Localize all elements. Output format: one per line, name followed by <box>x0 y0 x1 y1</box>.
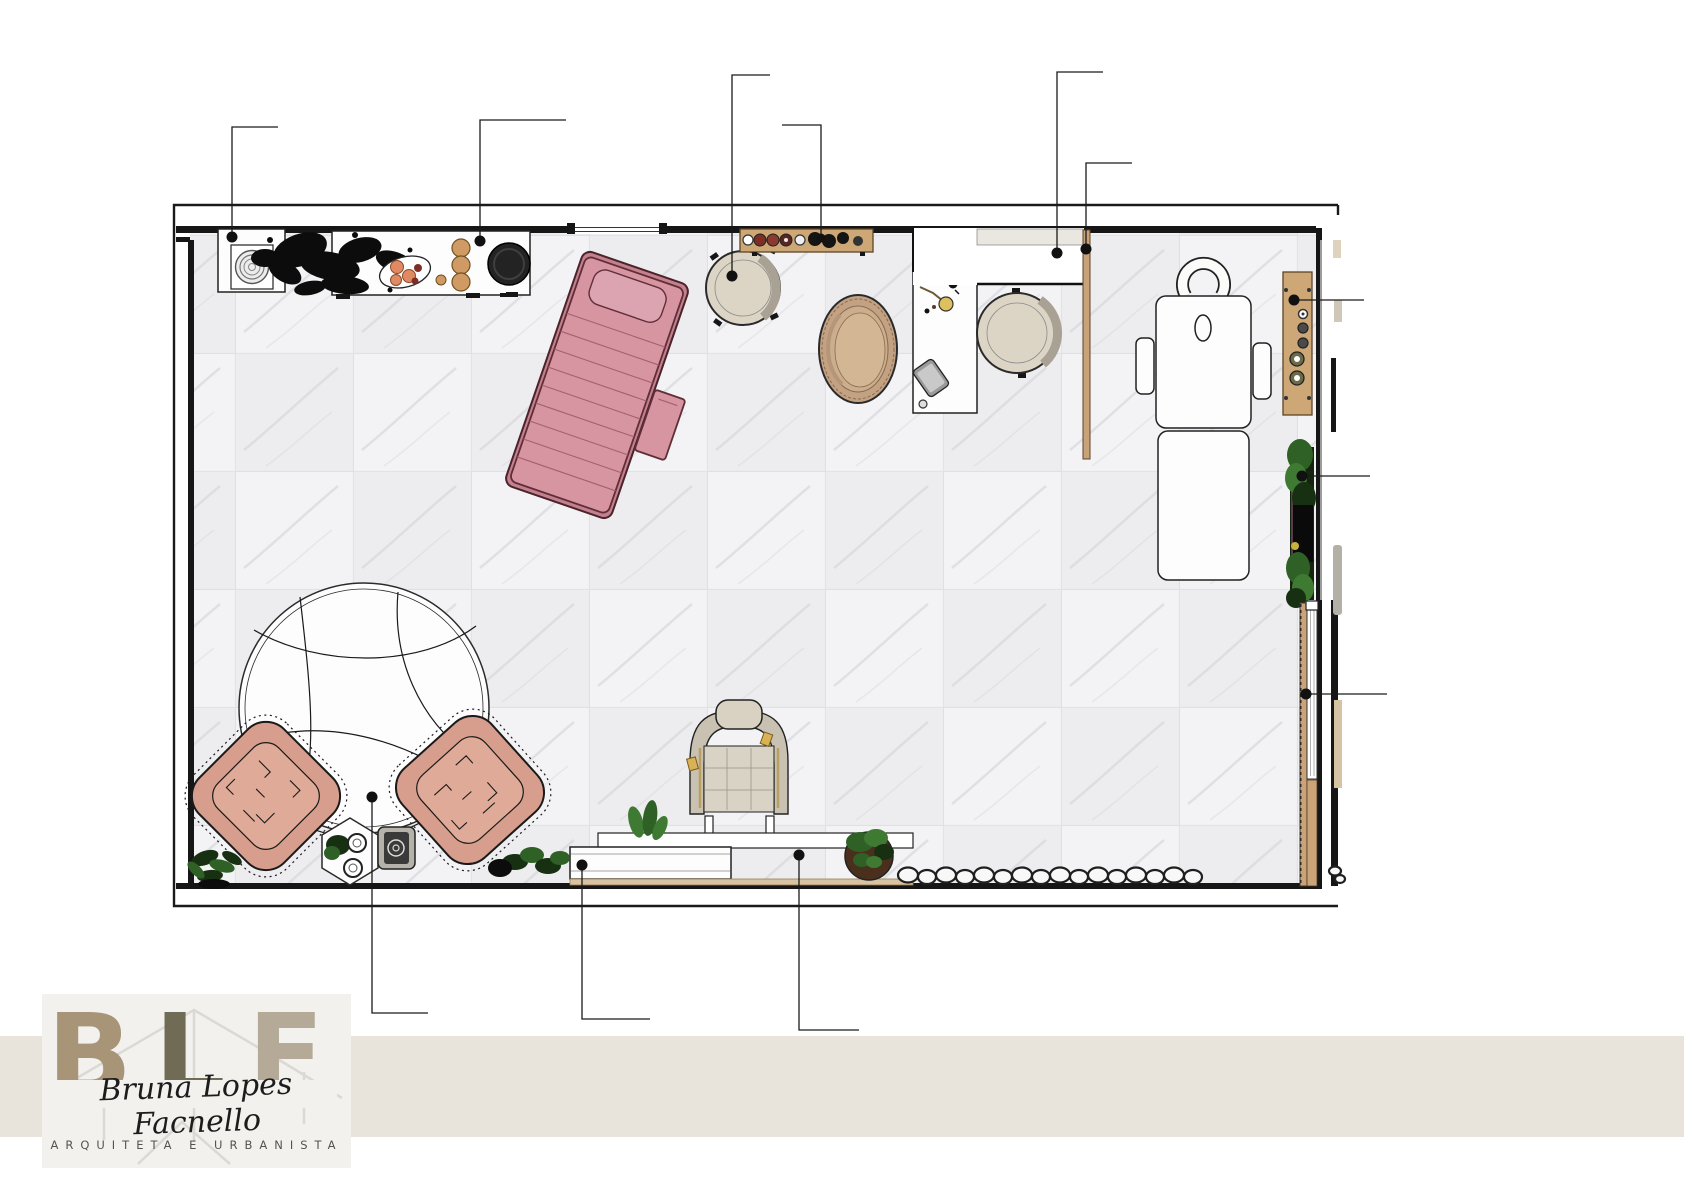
potted-plant: potted plant <box>845 829 894 880</box>
speaker: portable speaker <box>378 827 415 869</box>
adjacent-strip <box>1321 240 1345 886</box>
slatted-panel: wood slatted panel <box>1300 601 1318 886</box>
floor-plan: floor tiles room walls washing machine c… <box>0 0 1684 1192</box>
organizer-shelf: wall organizer shelf <box>1283 272 1312 415</box>
page: { "logo": { "letter_b": "B", "letter_l":… <box>0 0 1684 1192</box>
divider-panel: wood divider panel <box>1083 230 1090 459</box>
work-desk: work desk with lamp and tablet <box>912 270 977 413</box>
top-wall-opening <box>567 223 667 234</box>
desk-lamp-icon <box>939 297 953 311</box>
egg-chair: egg lounge chair <box>819 295 897 403</box>
callout-cosmetics-shelf: cosmetics shelf <box>782 125 826 243</box>
callout-washer: washing machine cabinet <box>227 127 279 243</box>
cosmetics-shelf: wall cosmetics shelf <box>740 229 873 256</box>
